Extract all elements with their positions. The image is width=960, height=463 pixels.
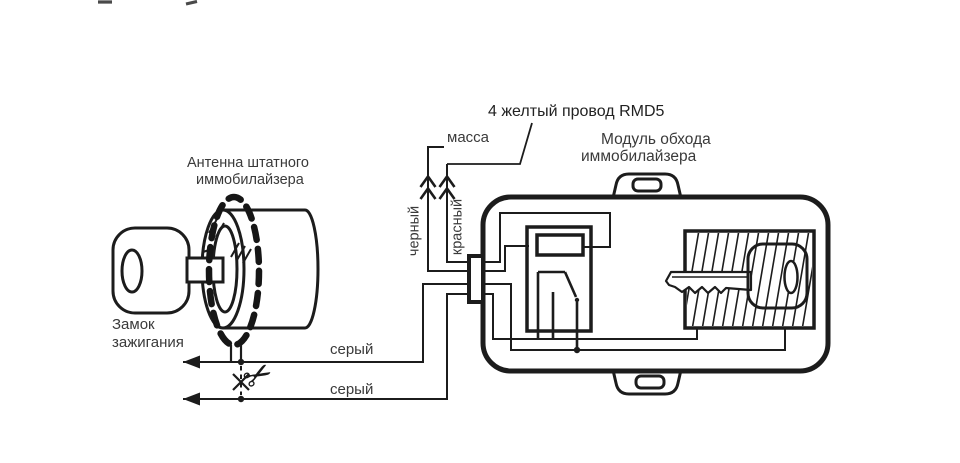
transponder-key-blade bbox=[666, 272, 751, 293]
ignition-lock-label-line2: зажигания bbox=[112, 335, 184, 351]
relay-coil bbox=[537, 235, 583, 255]
ignition-key-hole bbox=[122, 250, 142, 292]
top-crop-artifact bbox=[98, 2, 197, 5]
relay-switch-contact-dot bbox=[575, 298, 579, 302]
gray-wire-top-label: серый bbox=[330, 342, 373, 358]
antenna-label-line2: иммобилайзера bbox=[196, 173, 304, 188]
transponder-key-hole bbox=[785, 261, 798, 293]
red-wire-label: красный bbox=[450, 199, 465, 255]
relay-symbol bbox=[527, 227, 591, 331]
junction-dot-gray-bottom bbox=[238, 396, 244, 402]
yellow-wire-note-label: 4 желтый провод RMD5 bbox=[488, 104, 664, 121]
ignition-key-blade bbox=[187, 258, 223, 282]
module-top-tab-hole bbox=[633, 179, 661, 191]
module-title-line2: иммобилайзера bbox=[581, 149, 696, 165]
arrowhead-gray-bottom bbox=[183, 393, 200, 406]
immobilizer-bypass-wiring-diagram: 4 желтый провод RMD5 масса Модуль обхода… bbox=[0, 0, 960, 463]
black-wire-label: черный bbox=[407, 206, 422, 256]
antenna-label-line1: Антенна штатного bbox=[187, 156, 309, 171]
diagram-canvas bbox=[0, 0, 960, 463]
gray-wire-bottom-label: серый bbox=[330, 382, 373, 398]
transponder-winding-group bbox=[666, 230, 819, 330]
module-title-line1: Модуль обхода bbox=[601, 132, 711, 148]
module-bottom-tab-hole bbox=[636, 376, 664, 388]
arrowhead-gray-top bbox=[183, 356, 200, 369]
ground-label: масса bbox=[447, 130, 489, 146]
module-connector bbox=[469, 256, 483, 302]
junction-dot-bus bbox=[574, 347, 580, 353]
wire-continuation-chevrons bbox=[421, 177, 455, 200]
ignition-lock-label-line1: Замок bbox=[112, 317, 155, 333]
